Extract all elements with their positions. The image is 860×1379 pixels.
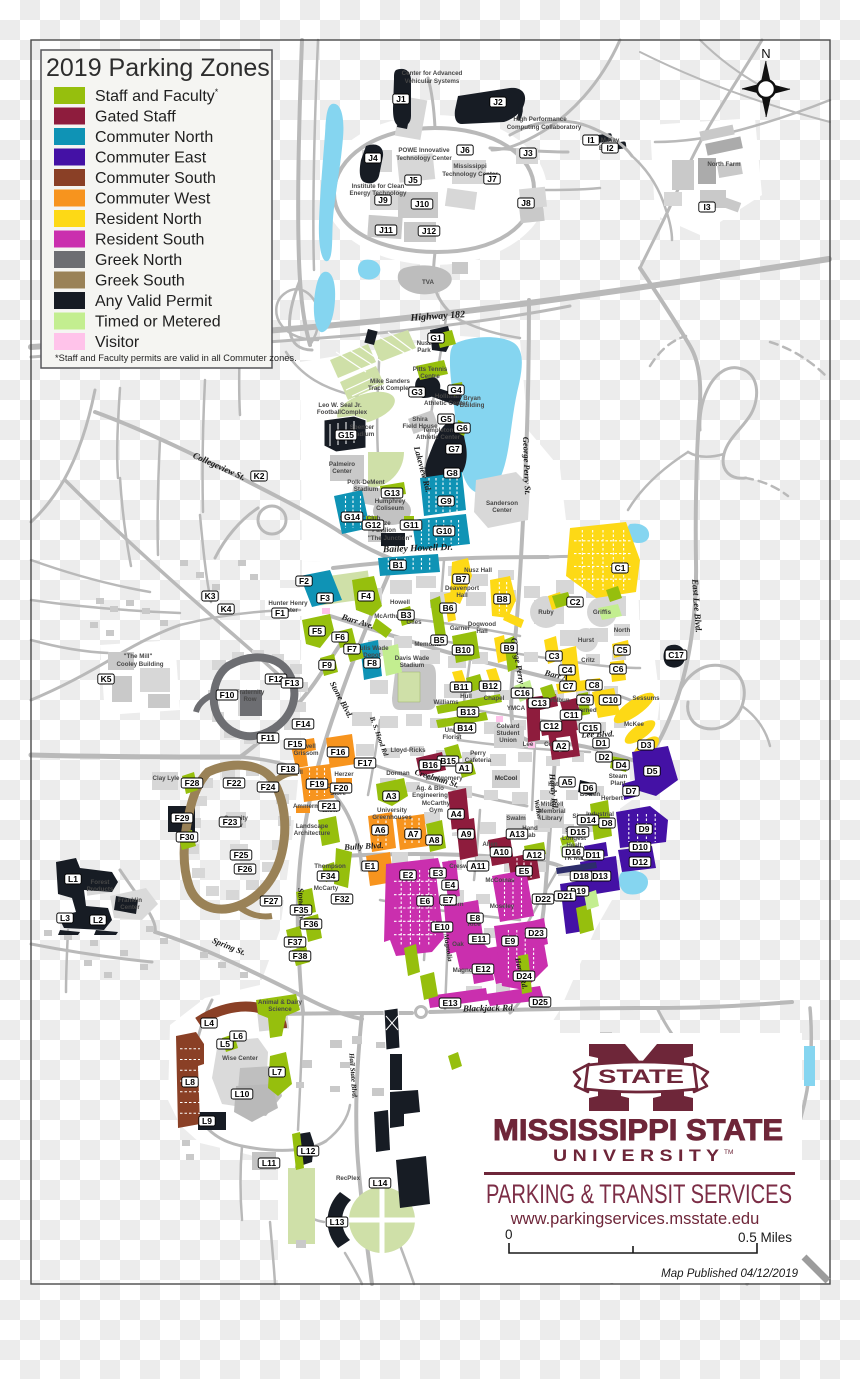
svg-text:Palmeiro: Palmeiro [329, 461, 355, 468]
svg-text:E3: E3 [433, 868, 444, 878]
svg-text:Hilbun: Hilbun [550, 697, 569, 704]
svg-text:E8: E8 [470, 913, 481, 923]
svg-text:Staff and Faculty*: Staff and Faculty* [95, 87, 219, 105]
svg-text:Moseley: Moseley [490, 903, 515, 910]
svg-text:J10: J10 [415, 199, 429, 209]
svg-text:Resident North: Resident North [95, 211, 202, 228]
svg-text:Deavenport: Deavenport [445, 585, 479, 592]
svg-text:E1: E1 [365, 861, 376, 871]
svg-text:J11: J11 [379, 225, 393, 235]
svg-text:C4: C4 [562, 665, 573, 675]
svg-text:Garner: Garner [450, 625, 471, 632]
svg-text:D7: D7 [626, 786, 637, 796]
svg-text:C15: C15 [582, 723, 598, 733]
svg-text:www.parkingservices.msstate.ed: www.parkingservices.msstate.edu [510, 1210, 760, 1228]
svg-text:RecPlex: RecPlex [336, 1175, 361, 1182]
svg-text:North: North [614, 627, 631, 634]
svg-text:F29: F29 [175, 813, 190, 823]
svg-text:Map Published 04/12/2019: Map Published 04/12/2019 [661, 1268, 798, 1280]
svg-text:F23: F23 [223, 817, 238, 827]
svg-text:Coliseum: Coliseum [376, 505, 404, 512]
svg-text:D11: D11 [585, 850, 600, 860]
svg-text:Fraternity: Fraternity [236, 689, 265, 696]
svg-text:F21: F21 [322, 801, 337, 811]
svg-text:Hull: Hull [460, 693, 472, 700]
svg-text:C9: C9 [580, 695, 591, 705]
svg-text:McCool: McCool [495, 775, 518, 782]
svg-text:Greek South: Greek South [95, 273, 185, 290]
svg-text:D21: D21 [557, 891, 573, 901]
svg-text:MISSISSIPPI STATE: MISSISSIPPI STATE [493, 1114, 783, 1147]
svg-text:F36: F36 [304, 919, 319, 929]
svg-text:D25: D25 [532, 997, 548, 1007]
svg-text:J9: J9 [378, 195, 388, 205]
svg-text:G11: G11 [403, 520, 419, 530]
svg-text:B7: B7 [456, 574, 467, 584]
svg-text:F34: F34 [321, 871, 336, 881]
svg-text:I3: I3 [703, 202, 710, 212]
svg-text:L5: L5 [220, 1039, 230, 1049]
svg-text:Montgomery: Montgomery [425, 775, 463, 782]
svg-text:North Farm: North Farm [707, 161, 741, 168]
svg-text:F3: F3 [320, 593, 330, 603]
svg-text:Mississippi: Mississippi [453, 163, 487, 170]
svg-text:D18: D18 [573, 871, 589, 881]
svg-text:Colvard: Colvard [496, 723, 519, 730]
svg-text:PARKING & TRANSIT SERVICES: PARKING & TRANSIT SERVICES [486, 1179, 792, 1209]
svg-text:Chapel: Chapel [484, 695, 505, 702]
svg-text:A4: A4 [451, 809, 462, 819]
svg-text:J8: J8 [521, 198, 531, 208]
svg-text:D12: D12 [632, 857, 648, 867]
svg-text:C1: C1 [615, 563, 626, 573]
svg-text:University: University [377, 807, 407, 814]
svg-text:L10: L10 [235, 1089, 250, 1099]
svg-text:G1: G1 [430, 333, 442, 343]
svg-text:C3: C3 [549, 651, 560, 661]
svg-text:F2: F2 [299, 576, 309, 586]
svg-text:B13: B13 [460, 707, 476, 717]
svg-text:C16: C16 [514, 688, 530, 698]
svg-text:Mitchell: Mitchell [540, 801, 563, 808]
svg-text:Stadium: Stadium [354, 486, 379, 493]
svg-text:Thompson: Thompson [314, 863, 346, 870]
svg-text:Nusz Hall: Nusz Hall [464, 567, 492, 574]
svg-text:L1: L1 [68, 874, 78, 884]
svg-text:G8: G8 [446, 468, 458, 478]
svg-text:Hall: Hall [456, 592, 468, 599]
svg-text:Florist: Florist [443, 734, 462, 741]
svg-text:D10: D10 [632, 842, 648, 852]
svg-text:G15: G15 [338, 430, 354, 440]
svg-text:Center: Center [332, 468, 352, 475]
svg-text:"The Junction": "The Junction" [368, 535, 412, 542]
svg-text:Wise Center: Wise Center [222, 1055, 258, 1062]
svg-text:E11: E11 [472, 934, 487, 944]
svg-text:G4: G4 [450, 385, 462, 395]
svg-text:E7: E7 [443, 895, 454, 905]
svg-text:D9: D9 [639, 824, 650, 834]
svg-text:Clay Lyle: Clay Lyle [153, 775, 180, 782]
svg-text:Dorman: Dorman [386, 770, 410, 777]
svg-text:Blackjack Rd.: Blackjack Rd. [462, 1003, 515, 1014]
svg-text:Oak: Oak [452, 941, 464, 948]
svg-text:D5: D5 [647, 766, 658, 776]
svg-text:Greek North: Greek North [95, 252, 182, 269]
svg-text:Timed or Metered: Timed or Metered [95, 314, 221, 331]
svg-text:A9: A9 [461, 829, 472, 839]
svg-text:G7: G7 [448, 444, 460, 454]
svg-text:A8: A8 [429, 835, 440, 845]
svg-text:D23: D23 [528, 928, 544, 938]
svg-text:Leo W. Seal Jr.: Leo W. Seal Jr. [318, 402, 362, 409]
svg-text:F4: F4 [361, 591, 371, 601]
svg-text:Herbert: Herbert [601, 795, 623, 802]
svg-text:Critz: Critz [581, 657, 595, 664]
svg-text:Architecture: Architecture [294, 830, 331, 837]
svg-text:Athletic Center: Athletic Center [416, 434, 461, 441]
svg-text:L14: L14 [373, 1178, 388, 1188]
svg-text:Science: Science [268, 1006, 292, 1013]
svg-text:Engineering: Engineering [412, 792, 448, 799]
svg-text:J2: J2 [493, 97, 503, 107]
svg-text:Herzer: Herzer [334, 771, 354, 778]
svg-text:D14: D14 [580, 815, 596, 825]
svg-text:C12: C12 [543, 721, 559, 731]
svg-text:F25: F25 [234, 850, 249, 860]
svg-text:TM: TM [724, 1149, 733, 1156]
svg-text:C11: C11 [563, 710, 578, 720]
svg-text:C6: C6 [613, 664, 624, 674]
svg-text:G10: G10 [436, 526, 452, 536]
svg-text:Perry: Perry [470, 750, 486, 757]
svg-text:F30: F30 [180, 832, 195, 842]
svg-text:Sanderson: Sanderson [486, 500, 518, 507]
svg-text:F7: F7 [347, 644, 357, 654]
svg-text:Landscape: Landscape [296, 823, 329, 830]
svg-text:G5: G5 [440, 414, 452, 424]
svg-text:F20: F20 [334, 783, 349, 793]
svg-text:George Perry St.: George Perry St. [521, 437, 533, 496]
svg-text:D6: D6 [583, 783, 594, 793]
svg-text:B14: B14 [457, 723, 473, 733]
svg-text:Lee: Lee [523, 741, 534, 748]
svg-text:L3: L3 [60, 913, 70, 923]
svg-text:Park: Park [417, 347, 431, 354]
svg-text:F24: F24 [261, 782, 276, 792]
svg-text:F38: F38 [293, 951, 308, 961]
svg-text:Hurst: Hurst [578, 637, 594, 644]
svg-text:D15: D15 [570, 827, 586, 837]
svg-text:F26: F26 [238, 864, 253, 874]
svg-text:J3: J3 [523, 148, 533, 158]
svg-text:D22: D22 [535, 894, 551, 904]
svg-text:G13: G13 [384, 488, 400, 498]
svg-text:Grissom: Grissom [293, 750, 319, 757]
svg-text:Gated Staff: Gated Staff [95, 109, 176, 126]
svg-text:2019 Parking Zones: 2019 Parking Zones [46, 54, 270, 82]
svg-text:Davis Wade: Davis Wade [395, 655, 430, 662]
svg-text:Commuter North: Commuter North [95, 129, 213, 146]
svg-text:POWE Innovative: POWE Innovative [398, 147, 450, 154]
svg-text:J1: J1 [396, 94, 406, 104]
svg-text:F17: F17 [358, 758, 373, 768]
svg-text:D8: D8 [602, 818, 613, 828]
svg-text:Student: Student [496, 730, 519, 737]
svg-text:E12: E12 [475, 964, 490, 974]
svg-text:C10: C10 [602, 695, 618, 705]
svg-text:Bully Blvd.: Bully Blvd. [343, 840, 384, 852]
svg-text:L4: L4 [204, 1018, 214, 1028]
svg-text:0: 0 [505, 1227, 513, 1242]
svg-text:Stadium: Stadium [400, 662, 425, 669]
svg-text:Commuter South: Commuter South [95, 170, 216, 187]
svg-text:F14: F14 [296, 719, 311, 729]
svg-text:Ruby: Ruby [538, 609, 554, 616]
svg-text:D16: D16 [565, 847, 581, 857]
svg-text:B9: B9 [504, 643, 515, 653]
svg-text:Williams: Williams [433, 699, 459, 706]
svg-text:U N I V E R S I T Y: U N I V E R S I T Y [553, 1146, 720, 1165]
svg-text:G3: G3 [411, 387, 423, 397]
svg-text:C13: C13 [531, 698, 547, 708]
svg-text:I1: I1 [587, 135, 594, 145]
svg-text:D1: D1 [596, 738, 607, 748]
svg-text:I2: I2 [606, 143, 613, 153]
svg-text:A10: A10 [493, 847, 509, 857]
svg-text:L13: L13 [330, 1217, 345, 1227]
svg-text:McKee: McKee [624, 721, 645, 728]
svg-text:K2: K2 [254, 471, 265, 481]
svg-text:Polk-DeMent: Polk-DeMent [347, 479, 384, 486]
svg-text:Howell: Howell [390, 599, 410, 606]
svg-text:C2: C2 [570, 597, 581, 607]
svg-text:Animal & Dairy: Animal & Dairy [258, 999, 303, 1006]
svg-text:Swalm: Swalm [506, 815, 526, 822]
svg-text:D2: D2 [599, 752, 610, 762]
svg-text:A3: A3 [386, 791, 397, 801]
svg-text:L7: L7 [272, 1067, 282, 1077]
svg-text:A13: A13 [509, 829, 525, 839]
svg-text:Templeton: Templeton [423, 427, 454, 434]
svg-text:"The Mill": "The Mill" [124, 653, 153, 660]
svg-text:Track Complex: Track Complex [368, 385, 413, 392]
svg-text:F6: F6 [335, 632, 345, 642]
svg-text:J4: J4 [368, 153, 378, 163]
svg-text:F22: F22 [227, 778, 242, 788]
svg-text:*Staff and Faculty permits are: *Staff and Faculty permits are valid in … [55, 353, 297, 363]
svg-text:A7: A7 [408, 829, 419, 839]
svg-text:B8: B8 [497, 594, 508, 604]
svg-text:F9: F9 [322, 660, 332, 670]
svg-text:A1: A1 [459, 763, 470, 773]
svg-text:B10: B10 [455, 645, 471, 655]
svg-text:K3: K3 [205, 591, 216, 601]
svg-text:E5: E5 [519, 866, 530, 876]
svg-text:Gym: Gym [429, 807, 443, 814]
svg-text:Center: Center [120, 904, 140, 911]
svg-text:Lloyd-Ricks: Lloyd-Ricks [390, 747, 426, 754]
svg-text:F10: F10 [220, 690, 235, 700]
svg-text:Sessums: Sessums [632, 695, 660, 702]
svg-text:G6: G6 [456, 423, 468, 433]
svg-text:Memorial: Memorial [538, 808, 565, 815]
svg-text:J5: J5 [408, 175, 418, 185]
svg-text:FootballComplex: FootballComplex [317, 409, 368, 416]
svg-text:D3: D3 [641, 740, 652, 750]
svg-text:F18: F18 [281, 764, 296, 774]
svg-text:C17: C17 [668, 650, 684, 660]
svg-text:E13: E13 [442, 998, 457, 1008]
svg-text:L6: L6 [233, 1031, 243, 1041]
svg-text:C8: C8 [589, 680, 600, 690]
svg-text:B6: B6 [443, 603, 454, 613]
svg-text:F16: F16 [331, 747, 346, 757]
svg-text:D24: D24 [516, 971, 532, 981]
svg-text:Products: Products [87, 886, 114, 893]
svg-text:A12: A12 [526, 850, 542, 860]
svg-text:E4: E4 [445, 880, 456, 890]
svg-text:Building: Building [460, 402, 485, 409]
svg-text:L9: L9 [202, 1116, 212, 1126]
svg-text:McCarthy: McCarthy [422, 800, 451, 807]
svg-text:E6: E6 [420, 896, 431, 906]
svg-text:Union: Union [499, 737, 517, 744]
svg-text:K4: K4 [221, 604, 232, 614]
svg-text:L8: L8 [185, 1077, 195, 1087]
svg-text:J6: J6 [460, 145, 470, 155]
svg-text:B5: B5 [434, 635, 445, 645]
svg-text:Franklin: Franklin [118, 897, 142, 904]
svg-text:B16: B16 [422, 760, 438, 770]
svg-text:B15: B15 [440, 756, 456, 766]
svg-text:Center: Center [492, 507, 512, 514]
svg-text:McCarty: McCarty [314, 885, 339, 892]
svg-text:F11: F11 [261, 733, 275, 743]
svg-text:L12: L12 [301, 1146, 316, 1156]
svg-text:High Performance: High Performance [513, 116, 567, 123]
svg-text:L2: L2 [93, 915, 103, 925]
svg-text:G14: G14 [344, 512, 360, 522]
svg-text:Computing Collaboratory: Computing Collaboratory [507, 124, 582, 131]
svg-text:Ag. & Bio: Ag. & Bio [416, 785, 444, 792]
svg-text:YMCA: YMCA [507, 705, 526, 712]
svg-text:Bryan: Bryan [463, 395, 481, 402]
svg-text:Visitor: Visitor [95, 334, 140, 351]
svg-text:F27: F27 [264, 896, 279, 906]
svg-text:Cooley Building: Cooley Building [116, 661, 163, 668]
svg-text:F19: F19 [310, 779, 325, 789]
svg-text:A6: A6 [375, 825, 386, 835]
svg-text:B3: B3 [401, 610, 412, 620]
svg-text:Mike Sanders: Mike Sanders [370, 378, 410, 385]
svg-text:Commuter West: Commuter West [95, 191, 211, 208]
svg-text:Vehicular Systems: Vehicular Systems [405, 78, 460, 85]
svg-text:B1: B1 [393, 560, 404, 570]
svg-text:E2: E2 [403, 870, 414, 880]
svg-text:B11: B11 [453, 682, 468, 692]
svg-text:K5: K5 [101, 674, 112, 684]
svg-text:0.5 Miles: 0.5 Miles [738, 1230, 792, 1245]
svg-text:Greenhouses: Greenhouses [372, 814, 412, 821]
svg-text:D13: D13 [592, 871, 608, 881]
svg-text:STATE: STATE [598, 1067, 684, 1088]
svg-text:Any Valid Permit: Any Valid Permit [95, 293, 213, 310]
svg-text:G9: G9 [440, 496, 452, 506]
svg-text:C7: C7 [563, 681, 574, 691]
svg-text:A2: A2 [556, 741, 567, 751]
svg-text:Commuter East: Commuter East [95, 150, 207, 167]
svg-text:Hunter Henry: Hunter Henry [268, 600, 308, 607]
svg-text:F37: F37 [288, 937, 303, 947]
svg-text:Steam: Steam [609, 773, 628, 780]
svg-text:C5: C5 [617, 645, 628, 655]
svg-text:J12: J12 [422, 226, 436, 236]
svg-text:Forest: Forest [91, 879, 110, 886]
svg-text:Institute for Clean: Institute for Clean [352, 183, 405, 190]
svg-text:Row: Row [243, 696, 256, 703]
svg-text:F13: F13 [285, 678, 300, 688]
svg-text:F1: F1 [275, 608, 285, 618]
svg-text:F15: F15 [288, 739, 303, 749]
svg-text:Hall: Hall [476, 628, 488, 635]
svg-text:Pitts Tennis: Pitts Tennis [413, 366, 448, 373]
svg-text:F35: F35 [294, 905, 309, 915]
svg-text:Griffis: Griffis [593, 609, 612, 616]
svg-text:TVA: TVA [422, 279, 434, 286]
svg-text:F5: F5 [312, 626, 322, 636]
svg-text:B12: B12 [482, 681, 498, 691]
svg-text:Shira: Shira [412, 416, 428, 423]
svg-text:Technology Center: Technology Center [396, 155, 452, 162]
svg-text:E10: E10 [434, 922, 449, 932]
svg-text:Centre: Centre [420, 373, 440, 380]
svg-text:G12: G12 [365, 520, 381, 530]
svg-text:D4: D4 [616, 760, 627, 770]
svg-text:Humphrey: Humphrey [375, 498, 406, 505]
svg-text:F32: F32 [335, 894, 350, 904]
svg-text:Resident South: Resident South [95, 232, 204, 249]
svg-text:N: N [761, 46, 770, 61]
svg-text:J7: J7 [487, 174, 497, 184]
svg-text:A11: A11 [470, 861, 485, 871]
svg-text:Center for Advanced: Center for Advanced [402, 70, 463, 77]
svg-text:F8: F8 [367, 658, 377, 668]
svg-text:F28: F28 [185, 778, 200, 788]
svg-text:A5: A5 [562, 777, 573, 787]
svg-text:Dogwood: Dogwood [468, 621, 496, 628]
svg-text:McComas: McComas [485, 877, 515, 884]
svg-text:Library: Library [542, 815, 564, 822]
svg-text:L11: L11 [262, 1158, 276, 1168]
svg-text:E9: E9 [505, 936, 516, 946]
